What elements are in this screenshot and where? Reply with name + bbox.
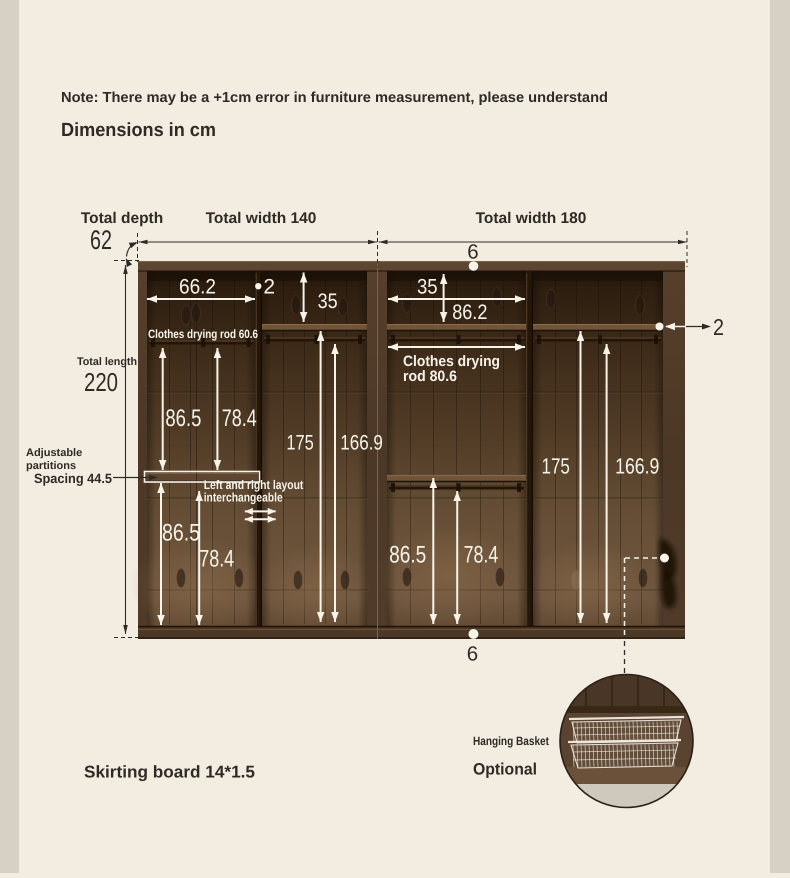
svg-text:86.2: 86.2: [452, 301, 487, 324]
svg-text:66.2: 66.2: [179, 276, 216, 299]
svg-text:Total width 140: Total width 140: [206, 210, 317, 227]
svg-text:Dimensions in cm: Dimensions in cm: [61, 120, 216, 141]
svg-text:Skirting board 14*1.5: Skirting board 14*1.5: [84, 763, 255, 782]
svg-text:2: 2: [713, 314, 724, 340]
svg-text:interchangeable: interchangeable: [204, 491, 283, 505]
svg-text:35: 35: [318, 290, 338, 313]
svg-text:220: 220: [84, 367, 118, 397]
svg-text:Spacing 44.5: Spacing 44.5: [34, 471, 112, 486]
svg-text:86.5: 86.5: [162, 520, 200, 547]
svg-text:2: 2: [263, 276, 275, 299]
svg-text:78.4: 78.4: [222, 405, 257, 432]
svg-text:78.4: 78.4: [199, 545, 234, 572]
svg-text:Adjustable: Adjustable: [26, 447, 82, 459]
svg-text:Optional: Optional: [473, 761, 537, 779]
svg-text:62: 62: [90, 225, 112, 255]
svg-text:175: 175: [542, 454, 570, 479]
svg-text:166.9: 166.9: [615, 454, 659, 479]
svg-text:175: 175: [286, 431, 313, 454]
svg-text:86.5: 86.5: [165, 405, 201, 432]
svg-text:Clothes drying rod 60.6: Clothes drying rod 60.6: [148, 327, 258, 341]
svg-text:Total width 180: Total width 180: [476, 210, 587, 227]
svg-text:rod 80.6: rod 80.6: [403, 368, 457, 385]
svg-text:6: 6: [467, 241, 478, 264]
svg-text:86.5: 86.5: [389, 541, 426, 568]
svg-text:6: 6: [467, 643, 478, 666]
svg-text:35: 35: [417, 275, 438, 298]
svg-text:Note: There may be a +1cm erro: Note: There may be a +1cm error in furni…: [61, 90, 608, 106]
svg-text:166.9: 166.9: [340, 432, 383, 455]
svg-text:Hanging Basket: Hanging Basket: [473, 734, 549, 748]
svg-text:78.4: 78.4: [464, 541, 499, 568]
